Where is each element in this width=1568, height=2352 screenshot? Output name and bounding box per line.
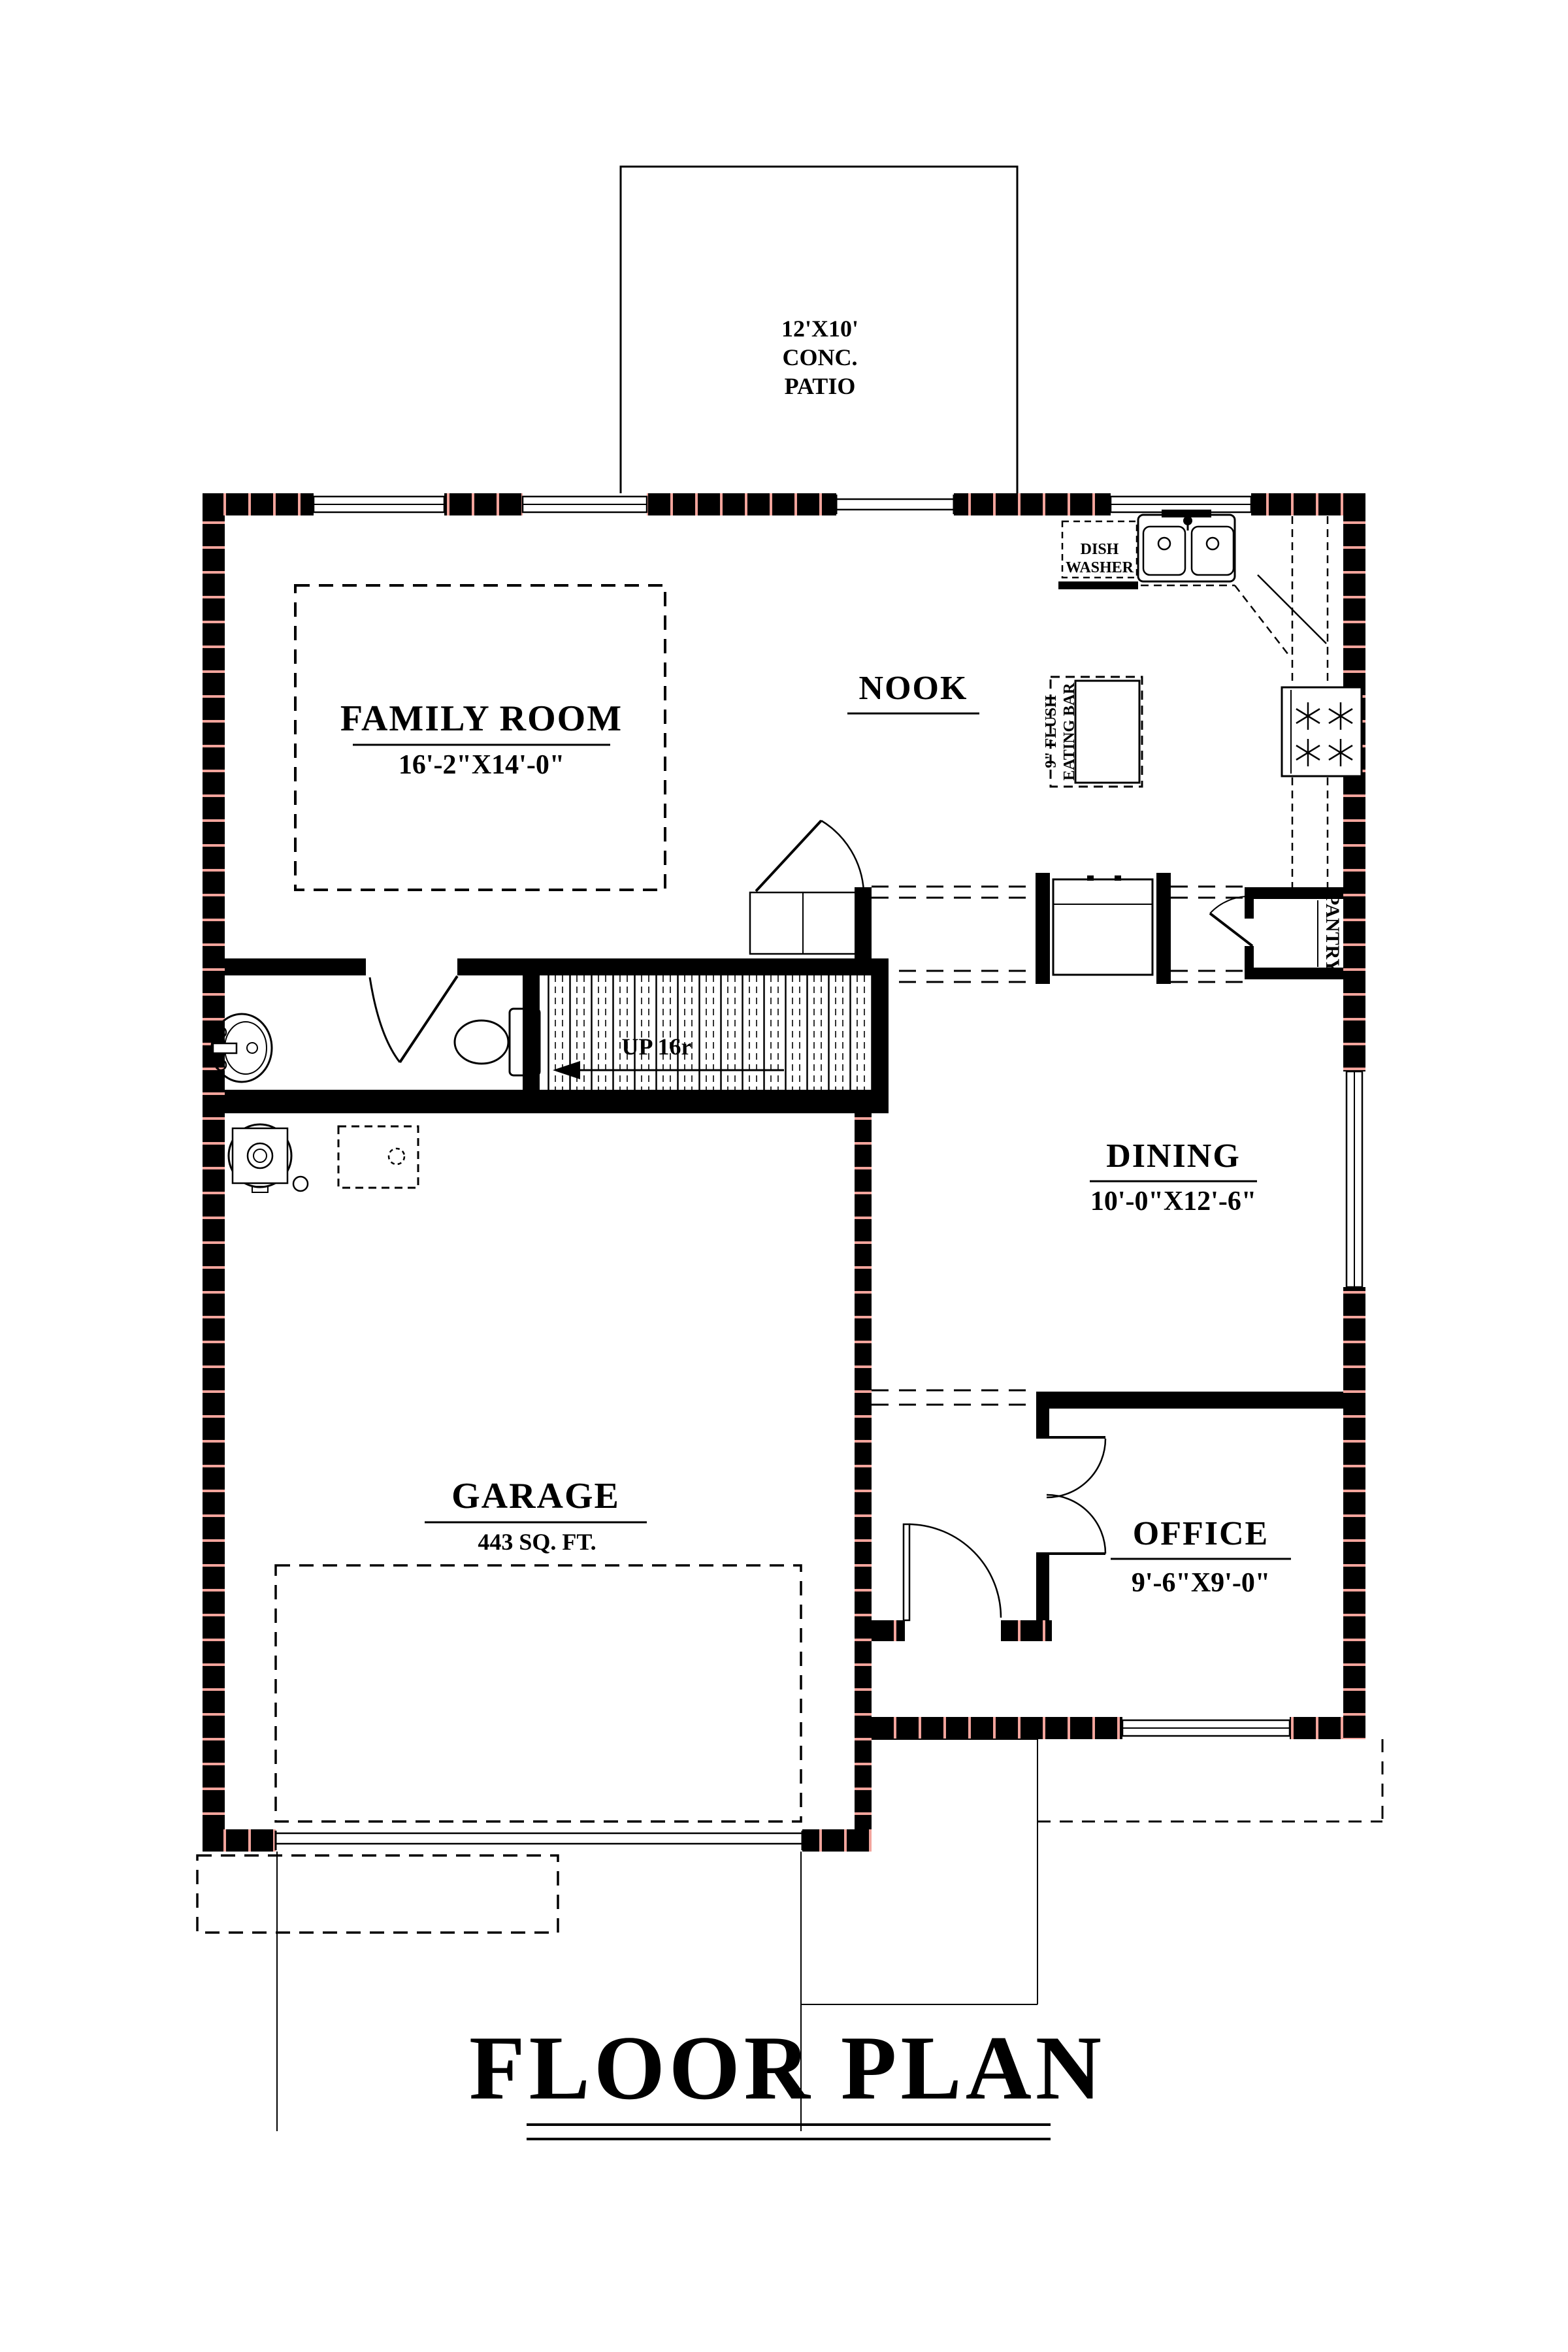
stove [1282,687,1362,776]
office-dims: 9'-6"X9'-0" [1132,1568,1270,1598]
wall-hall-bottom [225,1090,872,1113]
page-title: FLOOR PLAN [469,2017,1105,2119]
garage-fixtures [229,1124,801,1821]
wall-hall-top-2 [457,958,872,975]
wall-pantry-stub-bottom [1245,946,1254,968]
wall-office-top [1036,1392,1343,1409]
dishwasher-label-1: DISH [1081,541,1119,558]
garage-dims: 443 SQ. FT. [478,1529,596,1555]
coat-closet [750,821,864,954]
eating-bar-label-2: EATING BAR [1061,683,1078,781]
garage-door-dashed-outline [276,1565,801,1821]
window-family-2 [523,493,647,515]
doors [904,1437,1105,1620]
patio-label-2: CONC. [783,344,858,370]
garage-door [276,1829,802,1852]
window-office [1122,1717,1290,1739]
wall-alcove-left [1036,873,1050,984]
wall-garage-right [855,1113,872,1829]
kitchen-fixtures [1051,510,1362,975]
kitchen-sink [1138,510,1235,581]
floor-plan-drawing: 12'X10' CONC. PATIO FAMILY ROOM 16'-2"X1… [0,0,1568,2352]
wall-pantry-stub-top [1245,899,1254,919]
title-block: FLOOR PLAN [469,2017,1105,2139]
office-label: OFFICE [1133,1515,1269,1552]
counter-stub [1058,581,1138,589]
pantry-interior [1210,896,1318,967]
front-door [904,1524,1001,1620]
wall-closet-right [855,887,872,958]
wall-hall-top-1 [225,958,366,975]
pantry-label: PANTRY [1322,893,1343,973]
nook-label: NOOK [859,670,968,707]
powder-door [370,976,457,1062]
family-room-label: FAMILY ROOM [340,698,623,739]
pedestal-sink [212,1014,272,1082]
wall-alcove-right [1156,873,1171,984]
office-double-doors [1044,1437,1105,1554]
dishwasher-label-2: WASHER [1066,559,1134,576]
window-family-1 [314,493,444,515]
dining-dims: 10'-0"X12'-6" [1090,1186,1256,1217]
family-room-dims: 16'-2"X14'-0" [399,750,564,780]
floor-drain [293,1177,308,1191]
nook-door-arc [821,821,864,891]
wall-left [203,515,225,1852]
dining-label: DINING [1106,1137,1241,1175]
faucet [1162,510,1211,517]
patio-label-1: 12'X10' [781,316,858,342]
patio-door [836,493,954,515]
staircase [547,975,872,1090]
water-heater [229,1124,291,1192]
refrigerator [1053,875,1152,975]
patio-label-3: PATIO [785,373,856,399]
window-dining [1343,1071,1365,1287]
wall-powder-divider [523,975,540,1090]
front-door-opening [905,1620,1001,1641]
nook-door-leaf [756,821,821,891]
furnace [338,1126,418,1188]
wall-office-left-top [1036,1409,1049,1439]
wall-office-left-bottom [1036,1552,1049,1620]
stoop-dashed [197,1855,558,1933]
powder-room [212,976,540,1082]
stairs-label: UP 16r [622,1034,692,1060]
garage-label: GARAGE [451,1476,620,1516]
eating-bar-label-1: 9" FLUSH [1043,695,1060,768]
